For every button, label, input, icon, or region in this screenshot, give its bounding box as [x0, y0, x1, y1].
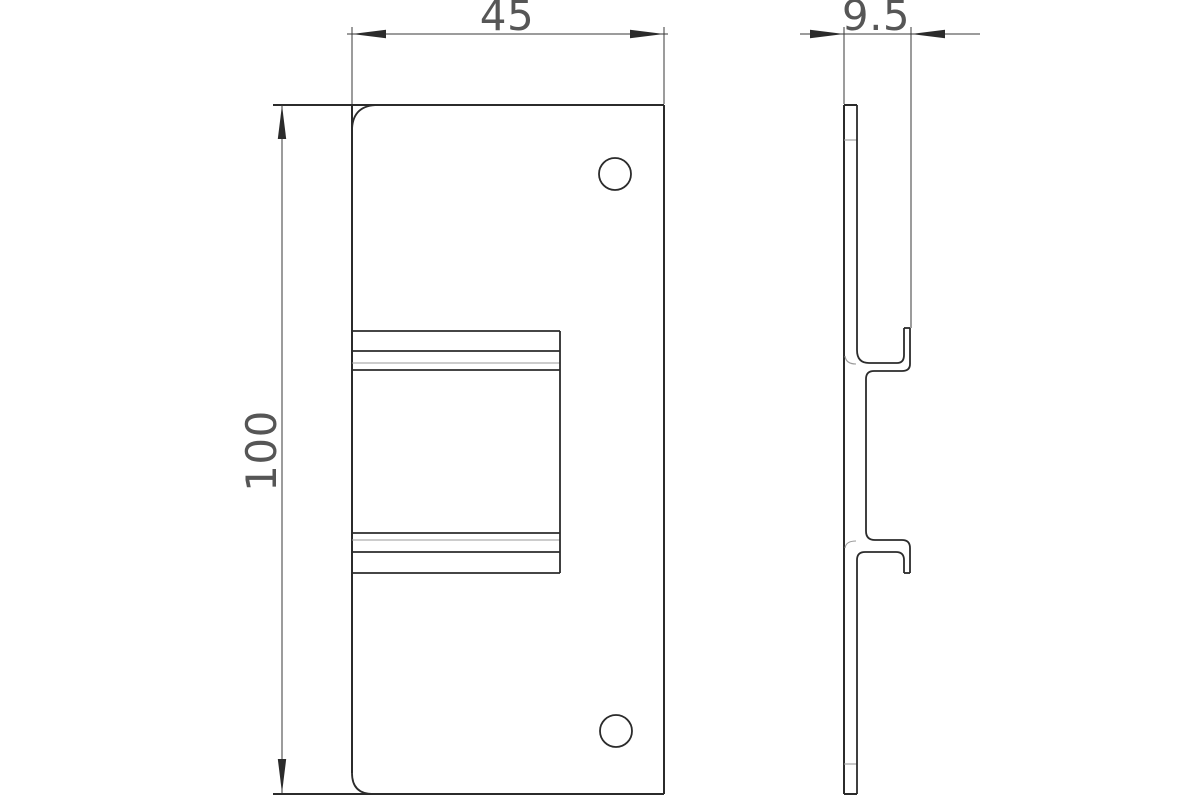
- side-clip-outer-profile: [866, 328, 910, 573]
- dimension-width: 45: [347, 0, 668, 104]
- front-bottom-left-fillet: [352, 773, 373, 794]
- height-dim-label: 100: [237, 410, 286, 492]
- height-arrow-bottom: [278, 759, 286, 793]
- side-view: [844, 105, 910, 794]
- side-top-lance-line: [845, 356, 856, 364]
- side-top-clip-inner: [857, 105, 904, 363]
- dimension-depth: 9.5: [800, 0, 980, 328]
- mounting-hole-top: [599, 158, 631, 190]
- mounting-hole-bottom: [600, 715, 632, 747]
- width-arrow-left: [352, 30, 386, 38]
- front-top-left-fillet: [352, 105, 378, 131]
- front-view: [273, 105, 664, 794]
- technical-drawing: 45 100 9.5: [0, 0, 1200, 800]
- side-bottom-clip-inner: [857, 552, 904, 794]
- height-arrow-top: [278, 105, 286, 139]
- width-dim-label: 45: [480, 0, 534, 40]
- width-arrow-right: [630, 30, 664, 38]
- depth-dim-label: 9.5: [842, 0, 910, 40]
- rail-recess-lines: [352, 331, 560, 573]
- side-bottom-lance-line: [845, 541, 856, 548]
- depth-arrow-right: [911, 30, 945, 38]
- depth-arrow-left: [810, 30, 844, 38]
- dimension-height: 100: [237, 105, 286, 793]
